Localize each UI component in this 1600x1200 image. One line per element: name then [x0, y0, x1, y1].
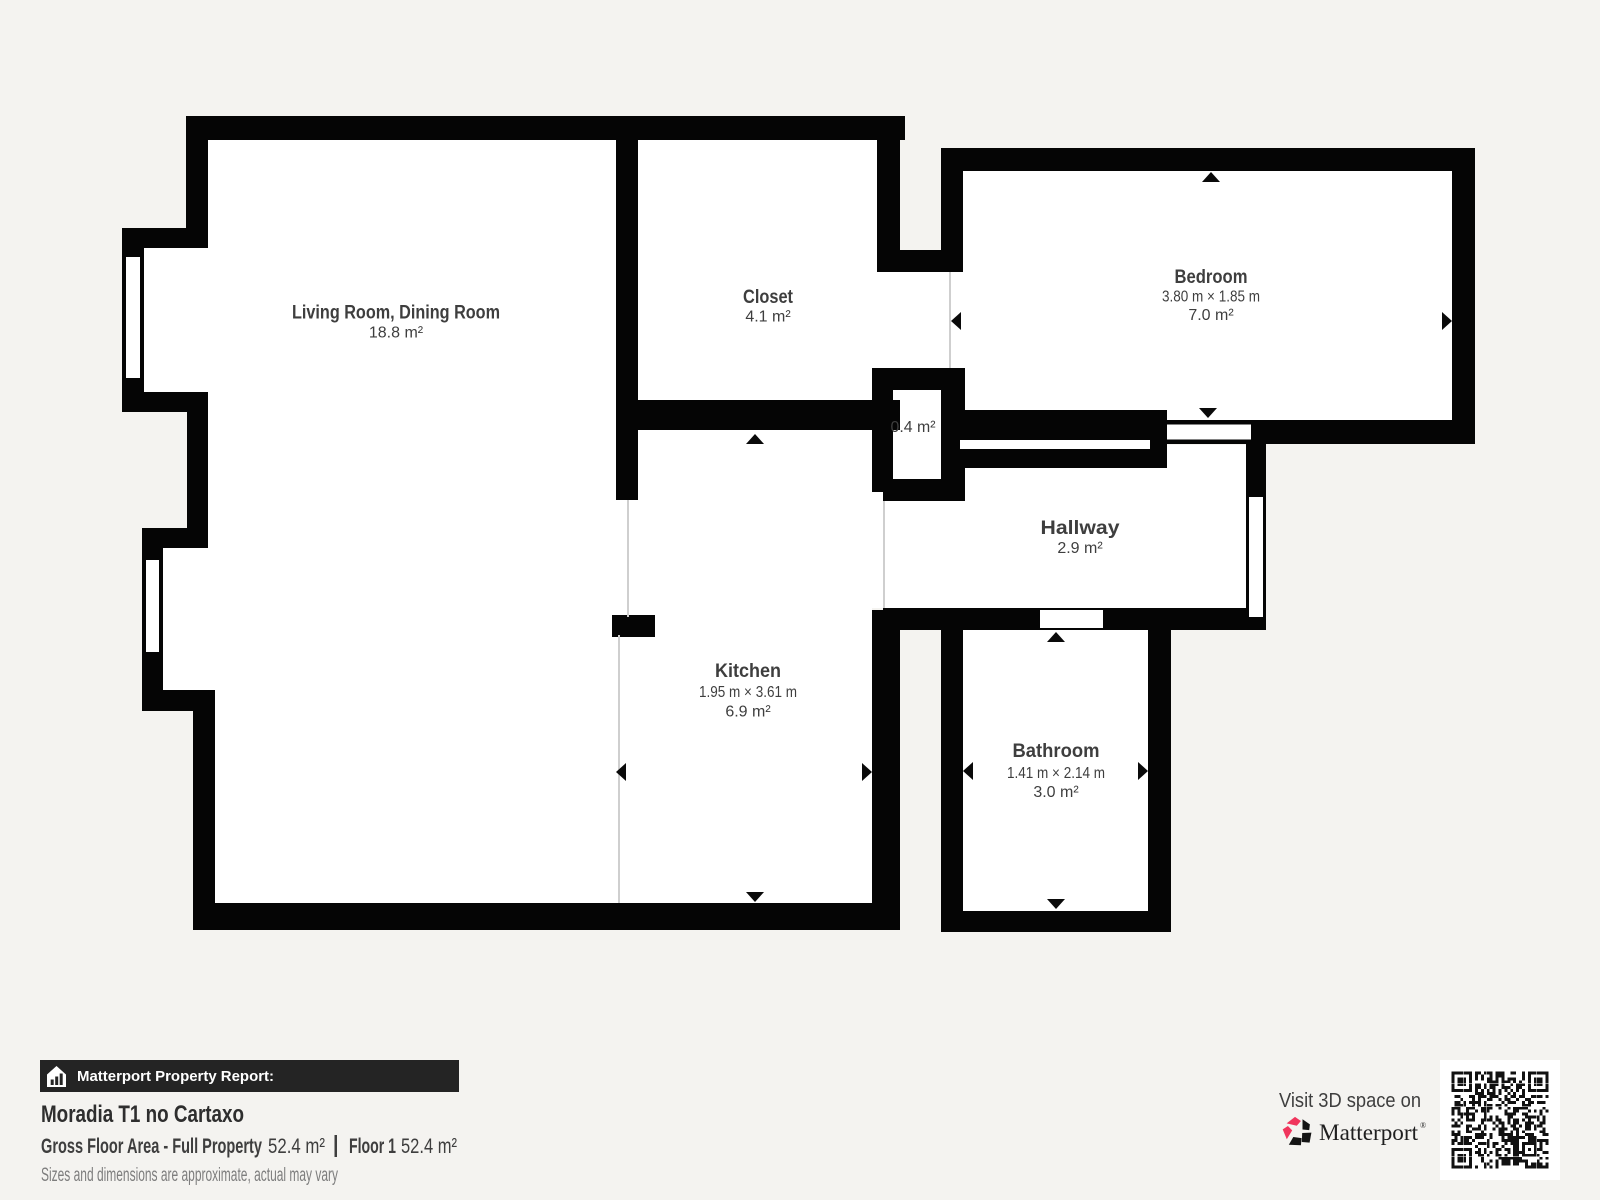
svg-text:Bedroom: Bedroom [1175, 267, 1248, 288]
svg-text:3.0 m²: 3.0 m² [1033, 784, 1079, 801]
svg-text:2.9 m²: 2.9 m² [1057, 540, 1103, 557]
svg-text:4.1 m²: 4.1 m² [745, 309, 791, 326]
svg-text:Hallway: Hallway [1041, 518, 1120, 539]
svg-text:18.8 m²: 18.8 m² [369, 325, 424, 342]
svg-text:Gross Floor Area - Full Proper: Gross Floor Area - Full Property [41, 1135, 262, 1158]
svg-text:52.4 m²: 52.4 m² [401, 1135, 457, 1158]
svg-text:0.4 m²: 0.4 m² [891, 419, 937, 436]
svg-text:Visit 3D space on: Visit 3D space on [1279, 1090, 1421, 1112]
svg-text:Living Room, Dining Room: Living Room, Dining Room [292, 303, 500, 324]
svg-text:Matterport: Matterport [1319, 1120, 1419, 1145]
svg-text:3.80 m × 1.85 m: 3.80 m × 1.85 m [1162, 289, 1260, 306]
svg-text:7.0 m²: 7.0 m² [1188, 307, 1234, 324]
svg-text:®: ® [1420, 1121, 1426, 1130]
svg-text:Moradia T1 no Cartaxo: Moradia T1 no Cartaxo [41, 1101, 244, 1128]
svg-text:1.41 m × 2.14 m: 1.41 m × 2.14 m [1007, 765, 1105, 782]
svg-text:52.4 m²: 52.4 m² [268, 1135, 325, 1158]
svg-text:Kitchen: Kitchen [715, 661, 781, 682]
svg-text:1.95 m × 3.61 m: 1.95 m × 3.61 m [699, 684, 797, 701]
svg-text:Matterport Property Report:: Matterport Property Report: [77, 1069, 274, 1085]
svg-text:Bathroom: Bathroom [1013, 741, 1100, 762]
svg-text:Closet: Closet [743, 287, 794, 308]
svg-text:Sizes and dimensions are appro: Sizes and dimensions are approximate, ac… [41, 1165, 338, 1186]
svg-text:Floor 1: Floor 1 [349, 1135, 396, 1158]
svg-text:6.9 m²: 6.9 m² [725, 704, 771, 721]
